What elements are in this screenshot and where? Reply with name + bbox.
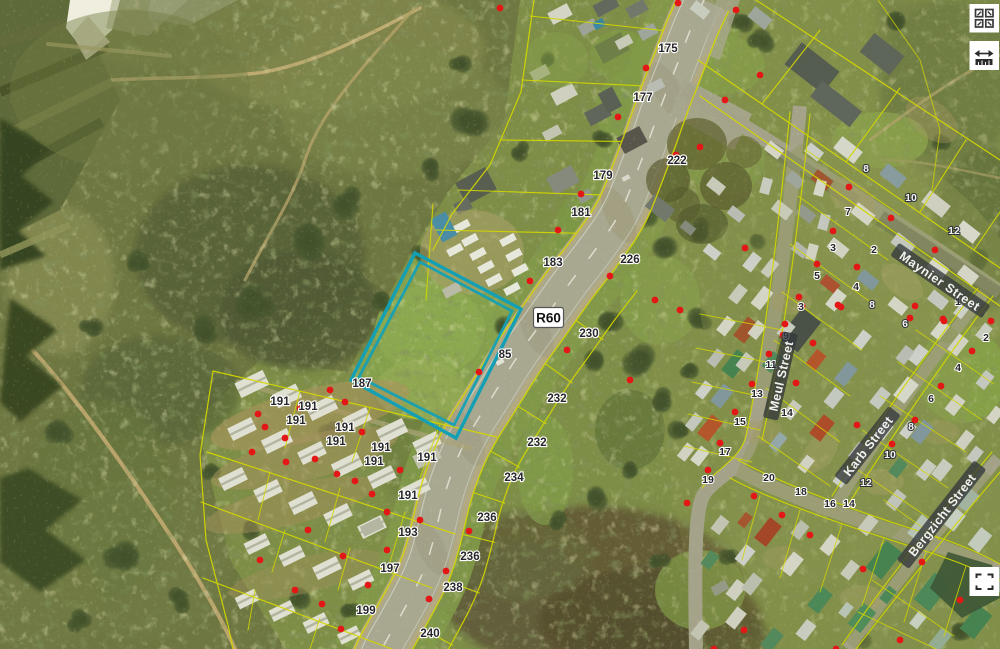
svg-text:191: 191 [270,396,290,408]
svg-text:3: 3 [798,301,804,313]
svg-text:236: 236 [477,512,496,524]
svg-text:177: 177 [633,92,652,104]
svg-text:85: 85 [499,349,512,361]
svg-text:238: 238 [443,582,463,594]
svg-text:234: 234 [504,472,524,484]
svg-text:183: 183 [543,257,562,269]
svg-text:4: 4 [955,362,961,374]
svg-text:17: 17 [719,446,731,458]
svg-text:232: 232 [527,437,546,449]
svg-text:175: 175 [658,43,678,55]
svg-text:191: 191 [371,442,391,454]
svg-text:13: 13 [751,388,763,400]
svg-text:181: 181 [571,207,591,219]
svg-text:191: 191 [364,456,384,468]
svg-text:187: 187 [352,378,371,390]
svg-text:2: 2 [871,244,877,256]
svg-text:6: 6 [928,393,934,405]
svg-text:12: 12 [948,225,960,237]
svg-text:191: 191 [286,415,306,427]
svg-text:199: 199 [356,605,375,617]
svg-text:179: 179 [593,170,612,182]
svg-text:18: 18 [795,486,807,498]
svg-text:236: 236 [460,551,479,563]
svg-text:6: 6 [902,318,908,330]
svg-text:2: 2 [983,332,989,344]
svg-text:3: 3 [830,242,836,254]
svg-text:222: 222 [667,155,686,167]
svg-text:R60: R60 [536,311,561,326]
svg-text:19: 19 [702,474,714,486]
svg-text:191: 191 [298,401,318,413]
svg-text:20: 20 [763,472,775,484]
svg-text:240: 240 [420,628,439,640]
svg-text:15: 15 [734,416,746,428]
svg-text:16: 16 [824,498,836,510]
svg-text:10: 10 [884,449,896,461]
svg-text:226: 226 [620,254,639,266]
svg-text:5: 5 [814,270,820,282]
svg-text:197: 197 [380,563,399,575]
svg-text:191: 191 [417,452,437,464]
svg-text:8: 8 [863,163,869,175]
svg-text:4: 4 [853,281,859,293]
svg-text:12: 12 [860,477,872,489]
svg-text:193: 193 [398,527,417,539]
svg-text:8: 8 [869,299,875,311]
svg-text:230: 230 [579,328,598,340]
svg-text:191: 191 [335,422,355,434]
svg-text:14: 14 [781,407,793,419]
svg-text:8: 8 [908,421,914,433]
svg-text:14: 14 [843,498,855,510]
svg-text:232: 232 [547,393,566,405]
svg-text:191: 191 [398,490,418,502]
svg-text:10: 10 [905,192,917,204]
svg-text:7: 7 [845,206,851,218]
svg-text:191: 191 [326,436,346,448]
